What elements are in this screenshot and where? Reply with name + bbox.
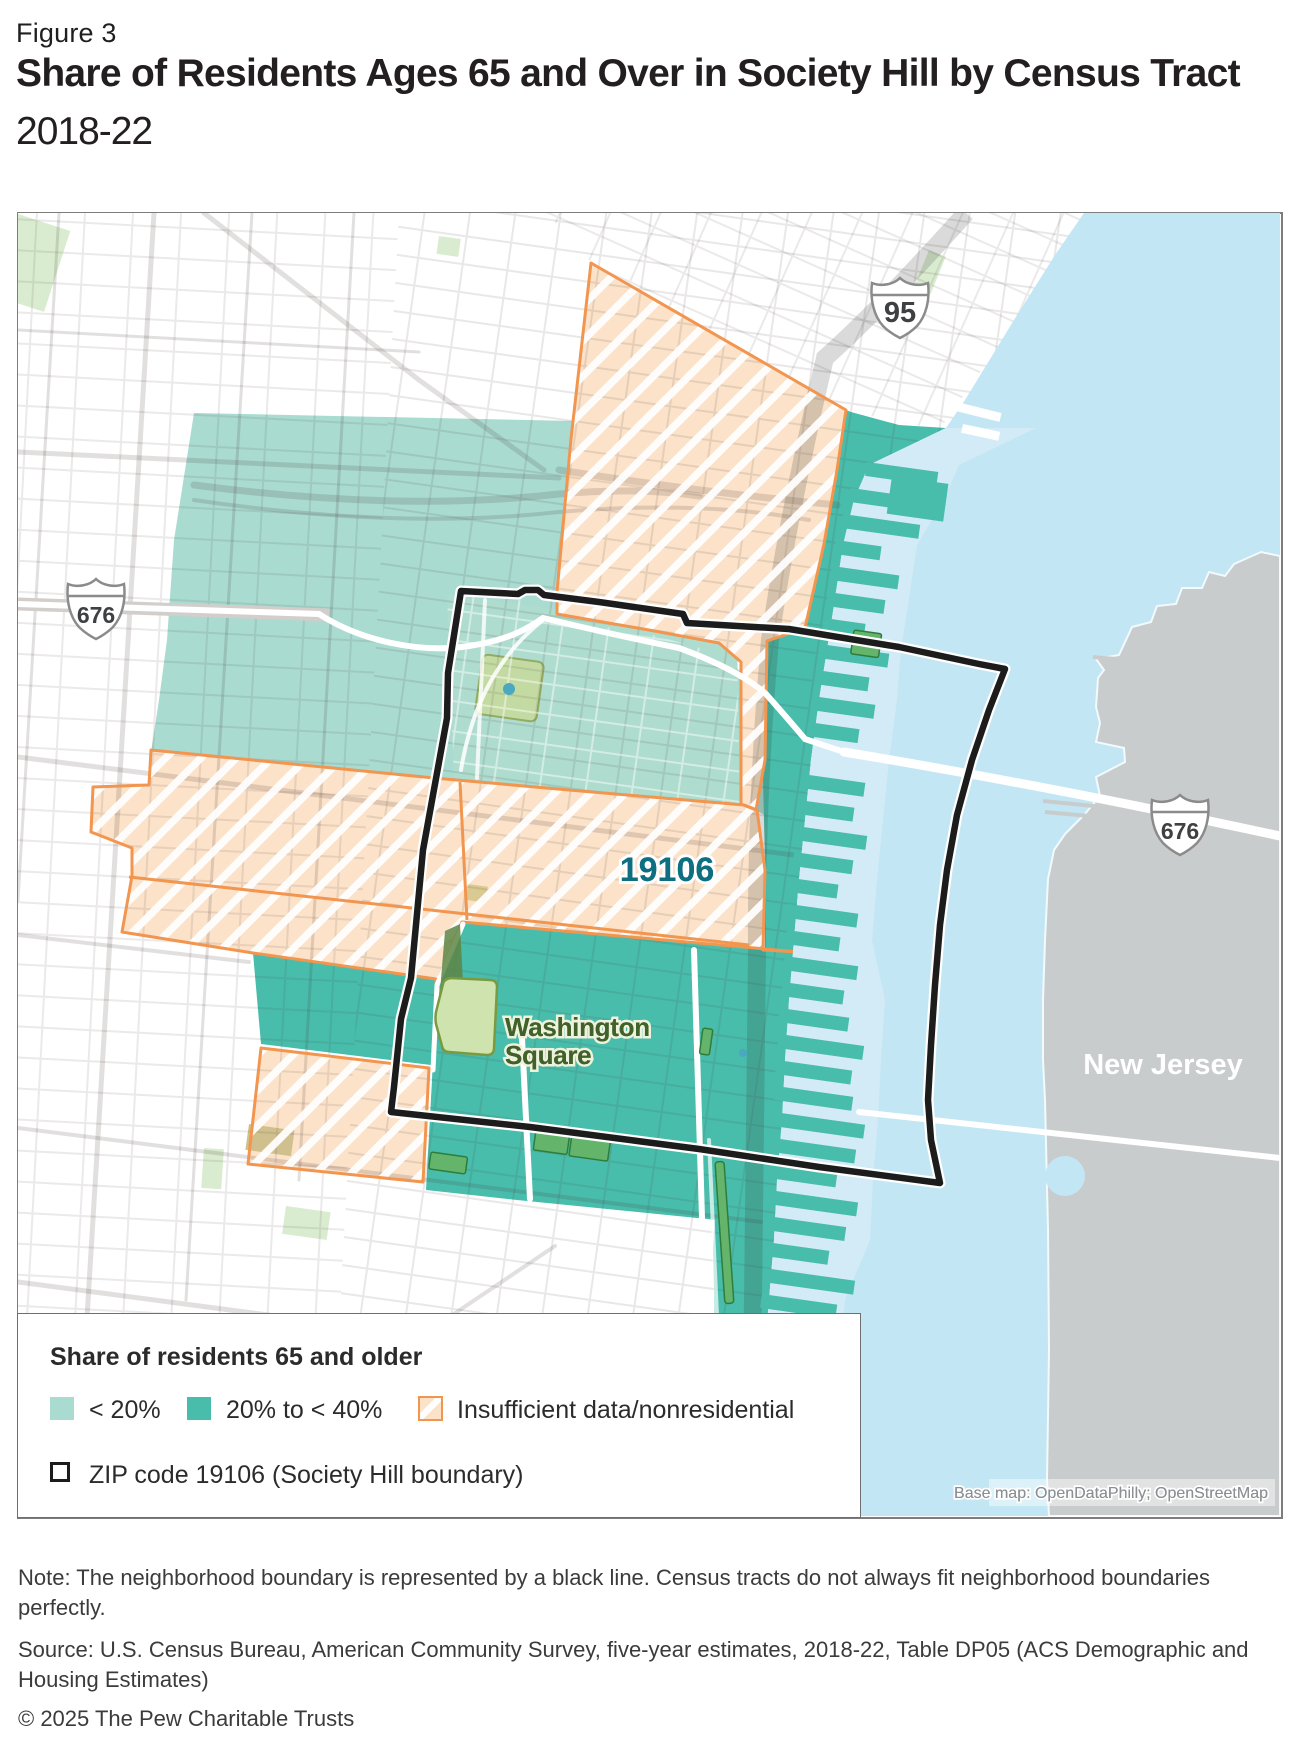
svg-text:Square: Square	[505, 1040, 591, 1070]
svg-text:New Jersey: New Jersey	[1083, 1049, 1243, 1081]
svg-text:676: 676	[1161, 818, 1199, 844]
svg-text:Base map: OpenDataPhilly; Open: Base map: OpenDataPhilly; OpenStreetMap	[954, 1485, 1268, 1502]
svg-text:95: 95	[884, 297, 916, 329]
svg-text:676: 676	[77, 602, 115, 628]
svg-text:Washington: Washington	[505, 1012, 650, 1042]
svg-text:19106: 19106	[620, 851, 715, 889]
